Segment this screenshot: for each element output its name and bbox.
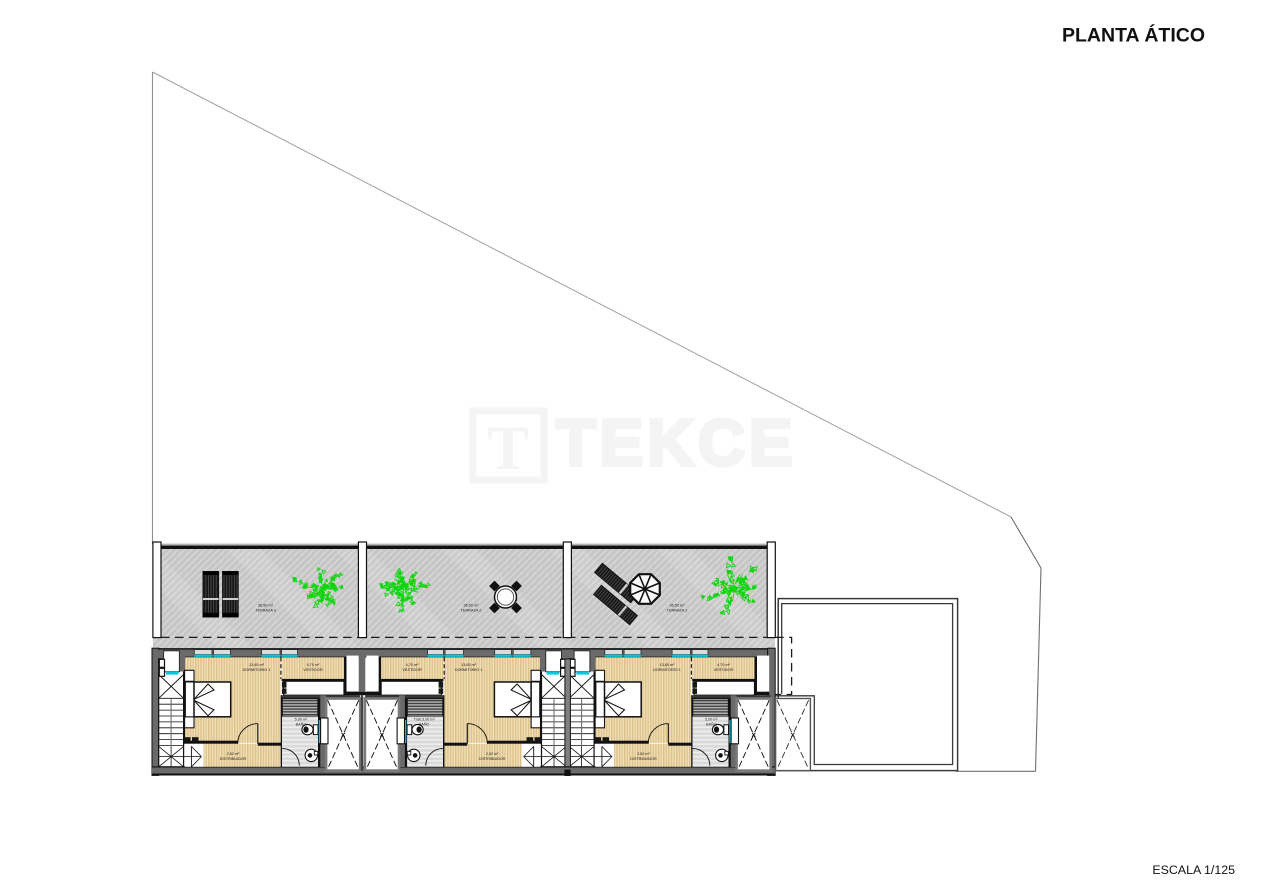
svg-text:DISTRIBUIDOR: DISTRIBUIDOR xyxy=(630,757,657,761)
svg-text:13,65 m²: 13,65 m² xyxy=(249,663,265,667)
svg-text:ESCALA 1/125: ESCALA 1/125 xyxy=(1152,863,1235,877)
svg-text:TERRAZA 3: TERRAZA 3 xyxy=(255,609,276,613)
svg-text:PLANTA ÁTICO: PLANTA ÁTICO xyxy=(1062,24,1205,47)
svg-text:T: T xyxy=(487,415,528,483)
svg-text:5,00 m²: 5,00 m² xyxy=(295,717,308,721)
svg-text:2,52 m²: 2,52 m² xyxy=(486,752,499,756)
svg-text:VESTIDOR: VESTIDOR xyxy=(714,668,734,672)
svg-text:36,50 m²: 36,50 m² xyxy=(258,604,274,608)
svg-text:2,52 m²: 2,52 m² xyxy=(637,752,650,756)
svg-text:TERRAZA 1: TERRAZA 1 xyxy=(667,609,688,613)
svg-text:DORMITORIO 1: DORMITORIO 1 xyxy=(653,668,681,672)
svg-text:TEKCE: TEKCE xyxy=(556,406,796,479)
svg-text:BAÑO: BAÑO xyxy=(296,721,307,726)
svg-text:36,50 m²: 36,50 m² xyxy=(670,604,686,608)
svg-text:Trab.5,00 m²: Trab.5,00 m² xyxy=(414,717,436,721)
svg-text:DISTRIBUIDOR: DISTRIBUIDOR xyxy=(479,757,506,761)
svg-text:4,70 m²: 4,70 m² xyxy=(307,663,321,667)
svg-text:VESTIDOR: VESTIDOR xyxy=(303,668,323,672)
svg-text:VESTIDOR: VESTIDOR xyxy=(402,668,422,672)
svg-text:TERRAZA 2: TERRAZA 2 xyxy=(461,609,482,613)
svg-text:BAÑO: BAÑO xyxy=(706,721,717,726)
svg-text:DISTRIBUIDOR: DISTRIBUIDOR xyxy=(220,757,247,761)
svg-text:DORMITORIO 1: DORMITORIO 1 xyxy=(455,668,483,672)
svg-text:5,00 m²: 5,00 m² xyxy=(705,717,718,721)
svg-text:4,70 m²: 4,70 m² xyxy=(717,663,731,667)
svg-text:4,70 m²: 4,70 m² xyxy=(406,663,420,667)
svg-text:2,52 m²: 2,52 m² xyxy=(227,752,240,756)
svg-text:13,65 m²: 13,65 m² xyxy=(660,663,676,667)
svg-text:36,50 m²: 36,50 m² xyxy=(464,604,480,608)
svg-text:BAÑO: BAÑO xyxy=(419,721,430,726)
svg-text:DORMITORIO 1: DORMITORIO 1 xyxy=(243,668,271,672)
svg-text:13,65 m²: 13,65 m² xyxy=(461,663,477,667)
